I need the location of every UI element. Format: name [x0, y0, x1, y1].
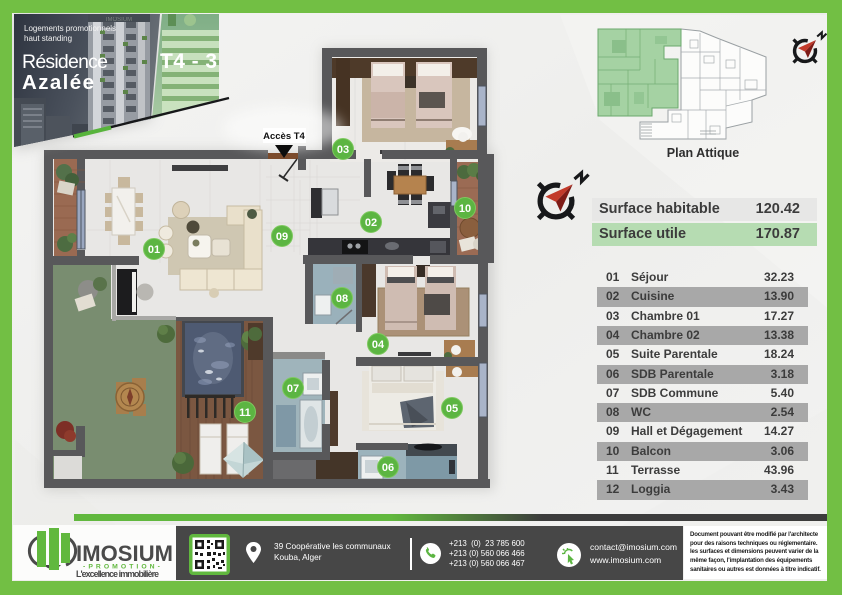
svg-text:IMOSIUM: IMOSIUM	[76, 541, 173, 566]
svg-text:Plan Attique: Plan Attique	[667, 146, 740, 160]
svg-text:L'excellence immobilière: L'excellence immobilière	[76, 569, 159, 579]
